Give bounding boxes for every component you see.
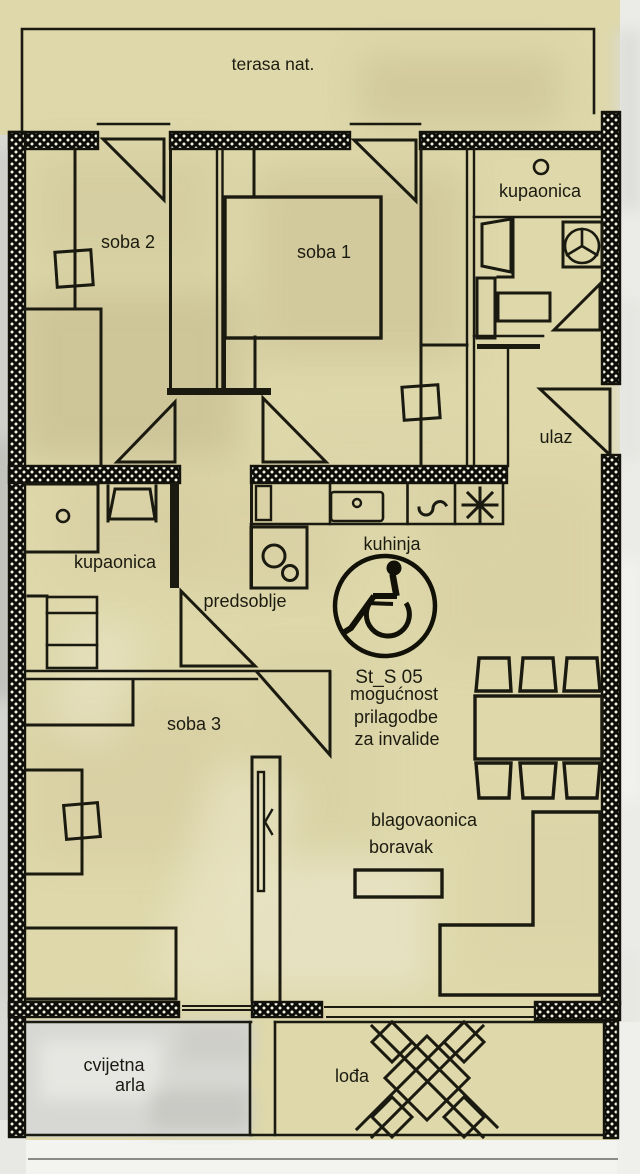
- svg-text:predsoblje: predsoblje: [203, 591, 286, 611]
- svg-text:prilagodbe: prilagodbe: [354, 707, 438, 727]
- svg-text:terasa nat.: terasa nat.: [232, 54, 315, 74]
- svg-text:soba 3: soba 3: [167, 714, 221, 734]
- svg-text:boravak: boravak: [369, 837, 434, 857]
- svg-text:blagovaonica: blagovaonica: [371, 810, 478, 830]
- svg-text:arla: arla: [115, 1075, 146, 1095]
- svg-text:kupaonica: kupaonica: [74, 552, 157, 572]
- svg-text:cvijetna: cvijetna: [83, 1055, 145, 1075]
- svg-text:lođa: lođa: [335, 1066, 370, 1086]
- svg-text:za invalide: za invalide: [354, 729, 439, 749]
- svg-text:mogućnost: mogućnost: [350, 684, 438, 704]
- svg-text:ulaz: ulaz: [539, 427, 572, 447]
- svg-text:soba 1: soba 1: [297, 242, 351, 262]
- svg-text:kupaonica: kupaonica: [499, 181, 582, 201]
- svg-text:soba 2: soba 2: [101, 232, 155, 252]
- svg-text:kuhinja: kuhinja: [363, 534, 421, 554]
